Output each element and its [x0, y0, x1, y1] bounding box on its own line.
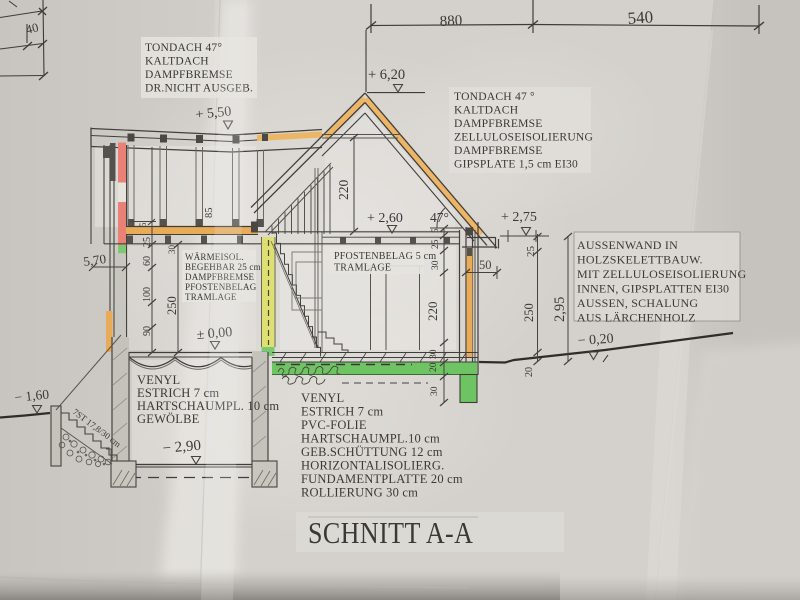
svg-text:ROLLIERUNG 30 cm: ROLLIERUNG 30 cm — [301, 486, 418, 500]
svg-text:880: 880 — [439, 13, 462, 30]
svg-text:GIPSPLATE 1,5 cm EI30: GIPSPLATE 1,5 cm EI30 — [454, 158, 578, 171]
svg-text:2,95: 2,95 — [552, 297, 568, 322]
svg-text:PFOSTENBELAG 5 cm: PFOSTENBELAG 5 cm — [334, 251, 436, 262]
svg-text:220: 220 — [425, 302, 440, 322]
svg-text:+ 2,75: + 2,75 — [501, 210, 537, 225]
svg-text:50: 50 — [479, 258, 492, 272]
svg-text:HARTSCHAUMPL.10 cm: HARTSCHAUMPL.10 cm — [301, 432, 440, 446]
svg-text:TONDACH 47°: TONDACH 47° — [145, 42, 222, 54]
svg-text:220: 220 — [336, 180, 351, 201]
svg-text:30: 30 — [430, 386, 440, 396]
svg-text:+ 2,60: + 2,60 — [367, 211, 403, 226]
svg-text:100: 100 — [142, 287, 153, 302]
svg-text:INNEN, GIPSPLATTEN EI30: INNEN, GIPSPLATTEN EI30 — [577, 282, 729, 296]
svg-text:250: 250 — [522, 303, 536, 322]
svg-text:VENYL: VENYL — [137, 373, 180, 387]
svg-text:KALTDACH: KALTDACH — [145, 56, 209, 68]
svg-text:47°: 47° — [430, 210, 449, 225]
svg-text:25: 25 — [525, 246, 537, 258]
svg-text:DAMPFBREMSE: DAMPFBREMSE — [454, 144, 543, 157]
svg-text:30: 30 — [429, 349, 439, 359]
svg-text:20: 20 — [524, 367, 535, 377]
svg-text:GEWÖLBE: GEWÖLBE — [137, 412, 200, 426]
svg-text:PVC-FOLIE: PVC-FOLIE — [301, 418, 367, 432]
svg-text:SCHNITT A-A: SCHNITT A-A — [308, 516, 473, 551]
svg-text:540: 540 — [627, 7, 654, 28]
svg-text:KALTDACH: KALTDACH — [454, 104, 519, 117]
svg-text:GEB.SCHÜTTUNG 12 cm: GEB.SCHÜTTUNG 12 cm — [301, 445, 443, 459]
svg-text:5,70: 5,70 — [82, 251, 107, 269]
svg-text:HOLZSKELETTBAUW.: HOLZSKELETTBAUW. — [577, 253, 703, 267]
svg-text:20: 20 — [429, 362, 439, 372]
svg-text:− 0,20: − 0,20 — [577, 332, 614, 349]
svg-text:ESTRICH 7 cm: ESTRICH 7 cm — [301, 405, 383, 419]
svg-text:TONDACH 47 °: TONDACH 47 ° — [454, 90, 535, 103]
svg-text:HORIZONTALISOLIERG.: HORIZONTALISOLIERG. — [301, 459, 444, 473]
svg-text:ESTRICH 7 cm: ESTRICH 7 cm — [137, 386, 219, 400]
svg-text:5: 5 — [138, 222, 148, 227]
svg-text:FUNDAMENTPLATTE 20 cm: FUNDAMENTPLATTE 20 cm — [301, 472, 463, 486]
svg-text:AUSSEN, SCHALUNG: AUSSEN, SCHALUNG — [577, 296, 698, 310]
svg-text:+ 6,20: + 6,20 — [368, 67, 405, 83]
svg-text:AUS LÄRCHENHOLZ: AUS LÄRCHENHOLZ — [577, 311, 696, 325]
svg-text:DAMPFBREMSE: DAMPFBREMSE — [145, 69, 233, 81]
svg-text:30: 30 — [167, 245, 177, 255]
svg-text:TRAMLAGE: TRAMLAGE — [334, 263, 391, 274]
svg-text:60: 60 — [142, 256, 153, 266]
svg-text:5: 5 — [430, 228, 440, 233]
svg-text:85: 85 — [204, 208, 215, 219]
svg-text:30: 30 — [431, 260, 441, 270]
svg-text:DAMPFBREMSE: DAMPFBREMSE — [454, 117, 543, 130]
svg-text:AUSSENWAND IN: AUSSENWAND IN — [577, 238, 678, 252]
svg-text:VENYL: VENYL — [301, 391, 344, 405]
svg-text:90: 90 — [142, 326, 153, 336]
svg-text:ZELLULOSEISOLIERUNG: ZELLULOSEISOLIERUNG — [454, 131, 593, 144]
svg-text:25: 25 — [142, 237, 153, 247]
svg-text:250: 250 — [165, 296, 179, 315]
svg-text:MIT ZELLULOSEISOLIERUNG: MIT ZELLULOSEISOLIERUNG — [577, 267, 746, 281]
svg-text:25: 25 — [431, 239, 441, 249]
svg-text:− 2,90: − 2,90 — [162, 438, 202, 457]
